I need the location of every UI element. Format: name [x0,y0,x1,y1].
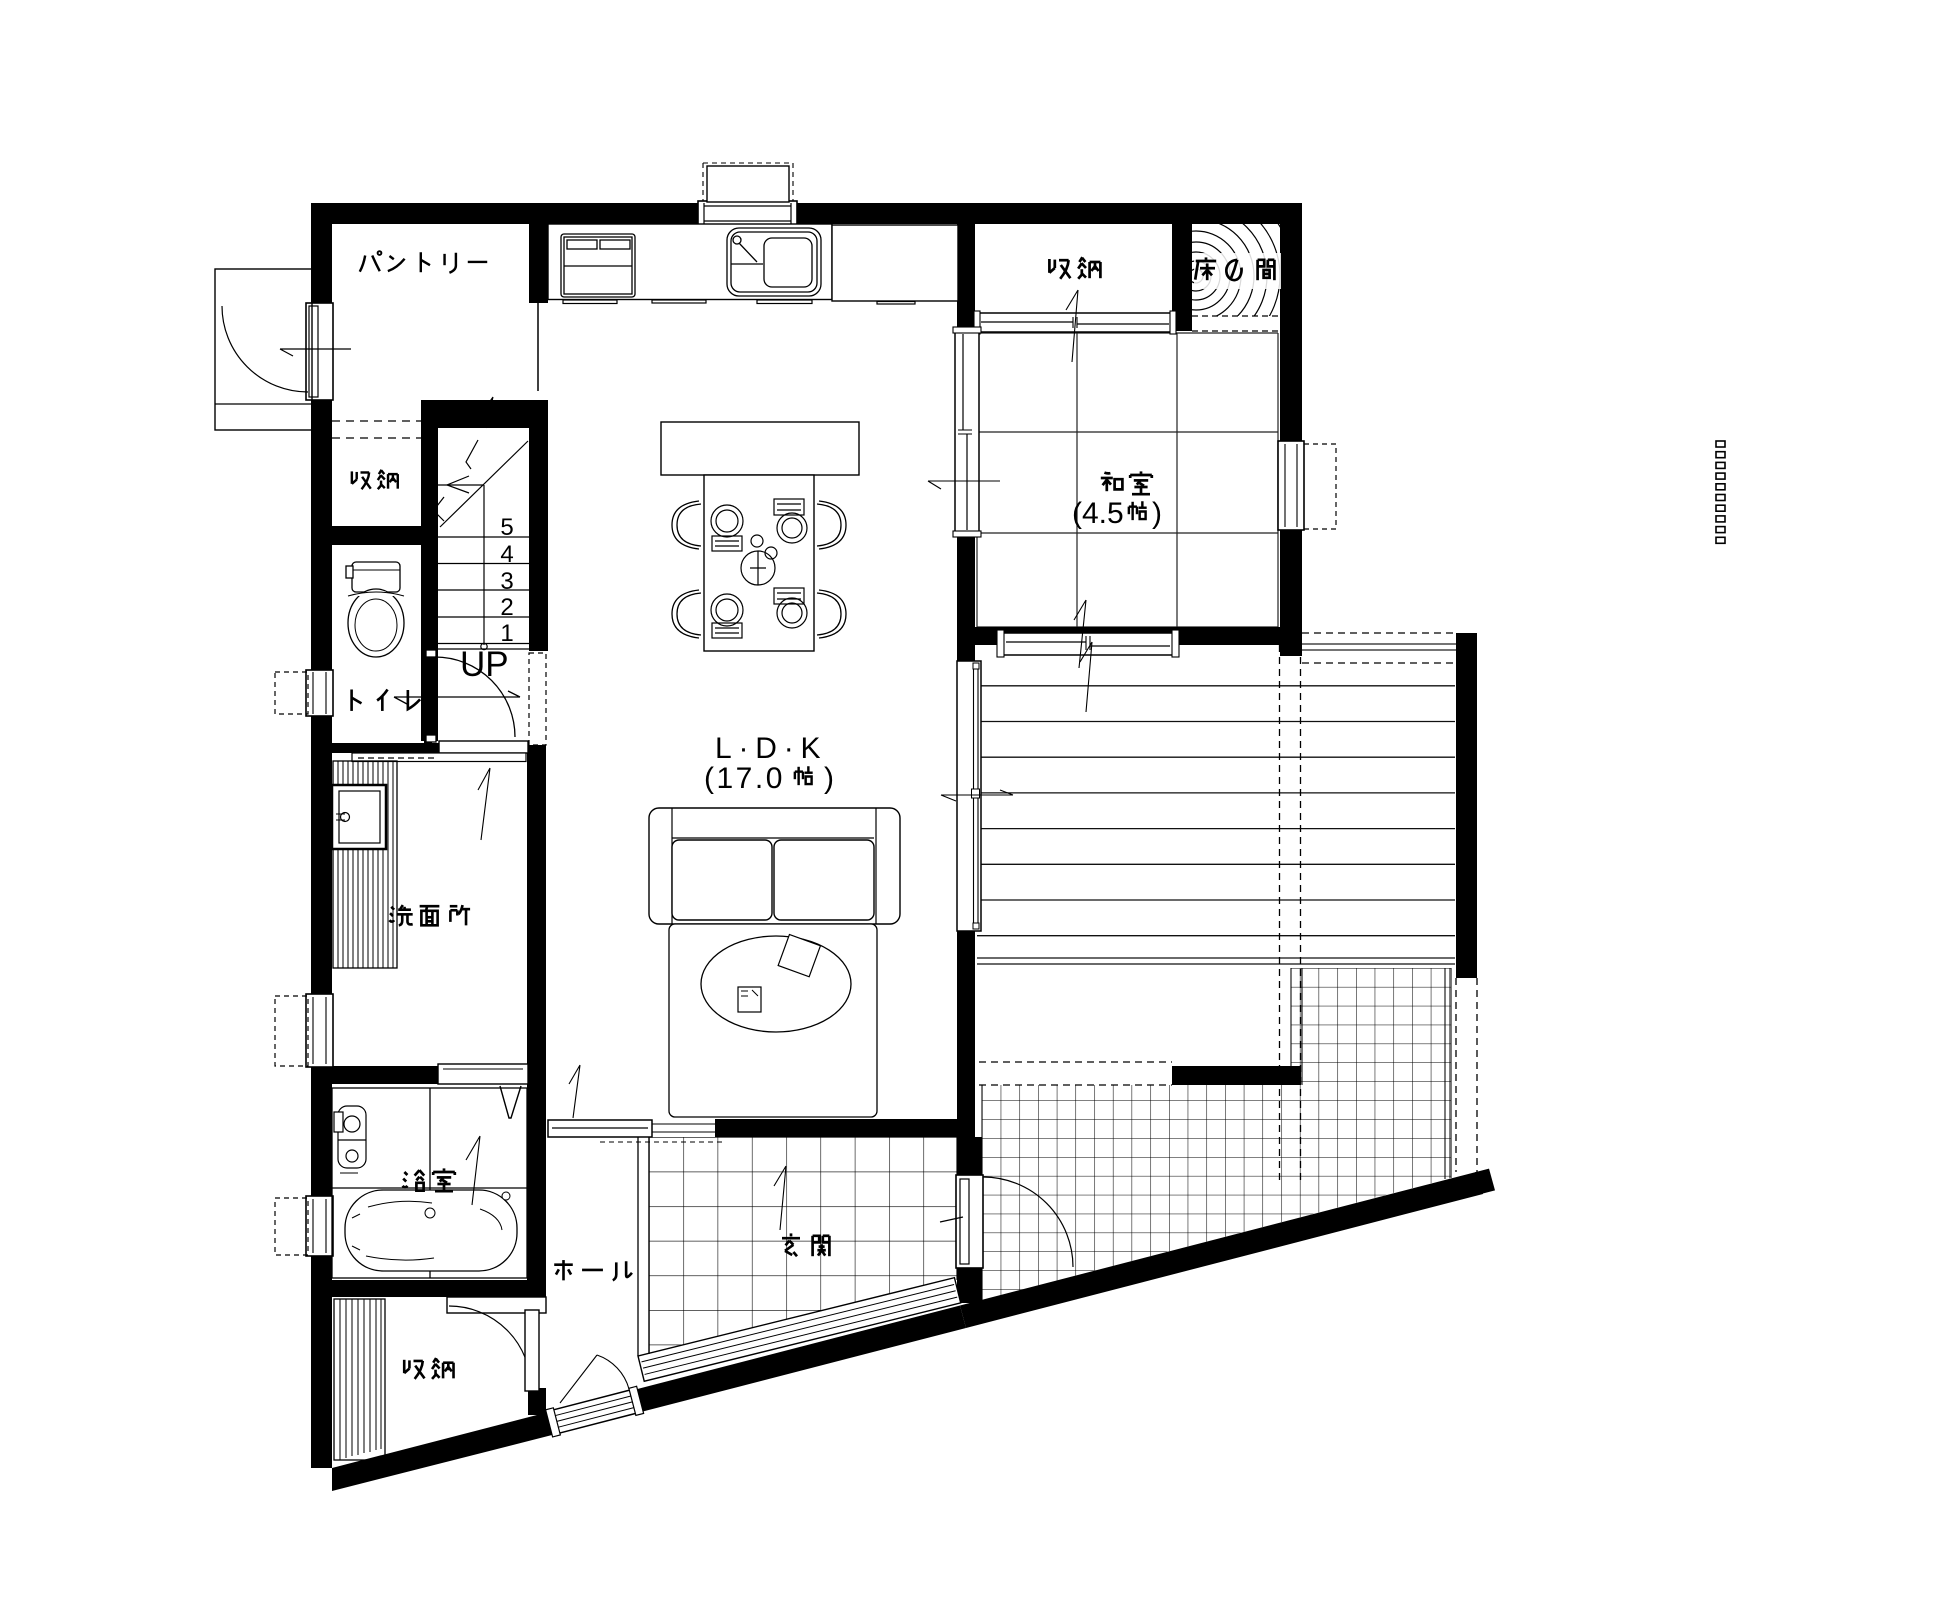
svg-text:4: 4 [500,541,513,568]
svg-text:5: 5 [500,514,513,541]
svg-text:3: 3 [500,568,513,595]
svg-text:L·D·K: L·D·K [715,732,827,765]
svg-text:(4.5: (4.5 [1072,497,1124,530]
svg-text:2: 2 [500,594,513,621]
svg-text:1: 1 [500,620,513,647]
svg-text:): ) [1152,497,1162,530]
svg-text:(17.0: (17.0 [704,762,785,795]
svg-text:): ) [824,762,834,795]
